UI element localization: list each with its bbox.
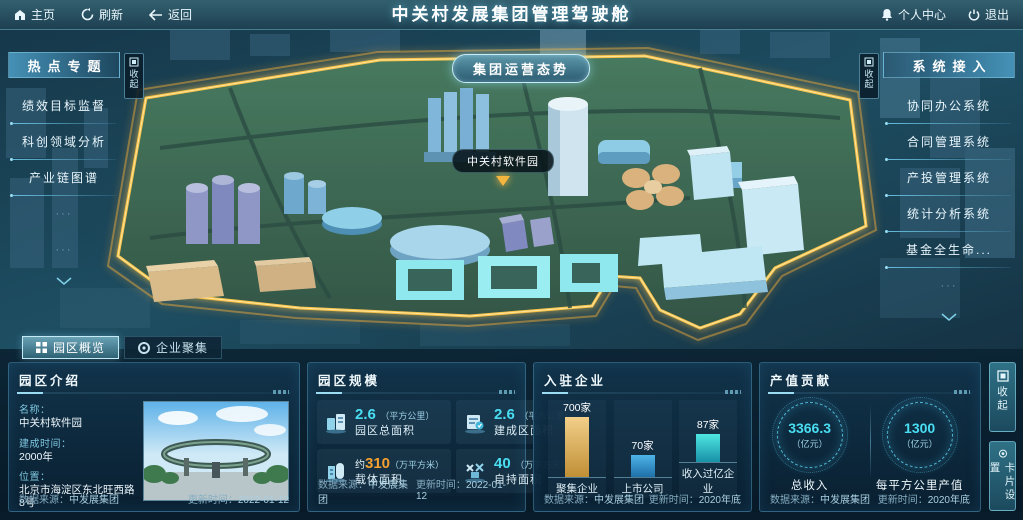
hot-topic-placeholder: ··· [8, 232, 120, 268]
dock-collapse-button[interactable]: 收起 [989, 362, 1016, 432]
panel-footer: 数据来源：中发展集团 更新时间：2022-01-12 [318, 476, 515, 506]
data-source: 中发展集团 [69, 495, 119, 506]
user-center-button[interactable]: 个人中心 [881, 6, 946, 23]
user-center-label: 个人中心 [898, 6, 946, 23]
system-access-header: 系统接入 [883, 52, 1015, 78]
updated-time: 2020年底 [928, 495, 970, 506]
bar-clustered-enterprises [565, 417, 589, 477]
top-bar: 主页 刷新 返回 中关村发展集团管理驾驶舱 个人中心 退出 [0, 0, 1023, 30]
card-settings-button[interactable]: 卡片设置 [989, 441, 1016, 511]
bar-group-clustered: 700家 聚集企业 [548, 400, 606, 498]
hot-topics-collapse-button[interactable]: 收起 [124, 53, 144, 99]
hot-topics-header: 热点专题 [8, 52, 120, 78]
home-label: 主页 [31, 6, 55, 23]
power-icon [968, 9, 980, 21]
tab-enterprise-cluster[interactable]: 企业聚集 [124, 336, 222, 359]
park-area-icon [324, 410, 348, 434]
revenue-circle: 3366.3 （亿元） [777, 402, 843, 468]
bar-listed-companies [631, 455, 655, 477]
hot-topics-panel: 热点专题 绩效目标监督 科创领域分析 产业链图谱 ··· ··· [8, 52, 120, 290]
system-item-contract-mgmt[interactable]: 合同管理系统 [883, 124, 1015, 160]
field-built-year: 建成时间： 2000年 [19, 435, 135, 464]
vertical-divider [870, 404, 871, 479]
collapse-icon [997, 370, 1009, 382]
system-access-panel: 系统接入 协同办公系统 合同管理系统 产投管理系统 统计分析系统 基金全生命..… [883, 52, 1015, 326]
hot-topic-placeholder: ··· [8, 196, 120, 232]
group-operation-mode-button[interactable]: 集团运营态势 [452, 54, 590, 83]
updated-time: 2020年底 [699, 495, 741, 506]
back-button[interactable]: 返回 [149, 6, 192, 23]
panel-footer: 数据来源：中发展集团 更新时间：2022-01-12 [19, 491, 289, 506]
field-name: 名称： 中关村软件园 [19, 401, 135, 430]
back-arrow-icon [149, 9, 163, 21]
panel-header-line [17, 392, 291, 394]
stat-total-area: 2.6 （平方公里） 园区总面积 [317, 400, 451, 444]
park-marker-label: 中关村软件园 [452, 149, 554, 173]
chevron-down-icon [56, 277, 72, 285]
collapse-icon [129, 57, 139, 67]
hot-topic-item-industry-chain[interactable]: 产业链图谱 [8, 160, 120, 196]
park-intro-panel: 园区介绍 名称： 中关村软件园 建成时间： 2000年 位置： 北京市海淀区东北… [8, 362, 300, 512]
output-value-panel: 产值贡献 3366.3 （亿元） 总收入 1300 （亿元） 每平方公里产值 [759, 362, 981, 512]
system-item-stat-analysis[interactable]: 统计分析系统 [883, 196, 1015, 232]
logout-button[interactable]: 退出 [968, 6, 1009, 23]
bar-revenue-over-100m [696, 434, 720, 462]
kpi-panels-row: 园区介绍 名称： 中关村软件园 建成时间： 2000年 位置： 北京市海淀区东北… [8, 362, 981, 512]
chevron-down-icon [941, 313, 957, 321]
logout-label: 退出 [985, 6, 1009, 23]
panel-header-line [316, 392, 517, 394]
data-source: 中发展集团 [820, 495, 870, 506]
gauge-output-per-sqkm: 1300 （亿元） 每平方公里产值 [876, 402, 964, 493]
bottom-edge-strip [0, 512, 1023, 520]
system-placeholder: ··· [883, 268, 1015, 304]
panel-title: 园区规模 [308, 363, 525, 392]
collapse-label: 收起 [128, 69, 141, 89]
refresh-icon [81, 8, 94, 21]
enterprises-bar-chart: 700家 聚集企业 70家 上市公司 87家 收入过亿企业 [534, 394, 751, 498]
grid-icon [36, 342, 47, 353]
bar-group-listed: 70家 上市公司 [614, 400, 672, 498]
system-item-collab-office[interactable]: 协同办公系统 [883, 88, 1015, 124]
refresh-label: 刷新 [99, 6, 123, 23]
updated-time: 2022-01-12 [238, 495, 289, 506]
enterprises-panel: 入驻企业 700家 聚集企业 70家 上市公司 87家 收入过亿企业 [533, 362, 752, 512]
system-access-scroll-down[interactable] [883, 304, 1015, 326]
gauge-total-revenue: 3366.3 （亿元） 总收入 [777, 402, 843, 493]
output-circle: 1300 （亿元） [887, 402, 953, 468]
home-icon [14, 9, 26, 21]
settings-icon [997, 449, 1009, 458]
collapse-icon [864, 57, 874, 67]
built-area-icon [463, 410, 487, 434]
hot-topic-item-scitech[interactable]: 科创领域分析 [8, 124, 120, 160]
collapse-label: 收起 [863, 69, 876, 89]
dock-side-buttons: 收起 卡片设置 [989, 362, 1016, 511]
back-label: 返回 [168, 6, 192, 23]
panel-header-line [542, 392, 743, 394]
refresh-button[interactable]: 刷新 [81, 6, 123, 23]
panel-footer: 数据来源：中发展集团 更新时间：2020年底 [770, 491, 970, 506]
tab-label: 企业聚集 [156, 339, 208, 356]
hot-topics-scroll-down[interactable] [8, 268, 120, 290]
data-source: 中发展集团 [594, 495, 644, 506]
dashboard-root: 主页 刷新 返回 中关村发展集团管理驾驶舱 个人中心 退出 集团运营态势 [0, 0, 1023, 520]
system-access-collapse-button[interactable]: 收起 [859, 53, 879, 99]
tab-label: 园区概览 [53, 339, 105, 356]
bell-icon [881, 8, 893, 21]
home-button[interactable]: 主页 [14, 6, 55, 23]
panel-footer: 数据来源：中发展集团 更新时间：2020年底 [544, 491, 741, 506]
hot-topic-item-performance[interactable]: 绩效目标监督 [8, 88, 120, 124]
park-map-marker[interactable]: 中关村软件园 [452, 149, 554, 186]
park-photo [143, 401, 289, 501]
panel-title: 入驻企业 [534, 363, 751, 392]
tab-park-overview[interactable]: 园区概览 [22, 336, 119, 359]
page-title: 中关村发展集团管理驾驶舱 [392, 0, 632, 30]
system-item-investment-mgmt[interactable]: 产投管理系统 [883, 160, 1015, 196]
map-pin-icon [496, 176, 510, 186]
park-scale-panel: 园区规模 2.6 （平方公里） 园区总面积 2.6 （平方公里） 建成区面积 [307, 362, 526, 512]
panel-title: 园区介绍 [9, 363, 299, 392]
bar-group-100m-revenue: 87家 收入过亿企业 [679, 400, 737, 498]
donut-icon [138, 342, 150, 354]
bottom-tabs: 园区概览 企业聚集 [22, 336, 222, 359]
panel-title: 产值贡献 [760, 363, 980, 392]
system-item-fund-lifecycle[interactable]: 基金全生命... [883, 232, 1015, 268]
